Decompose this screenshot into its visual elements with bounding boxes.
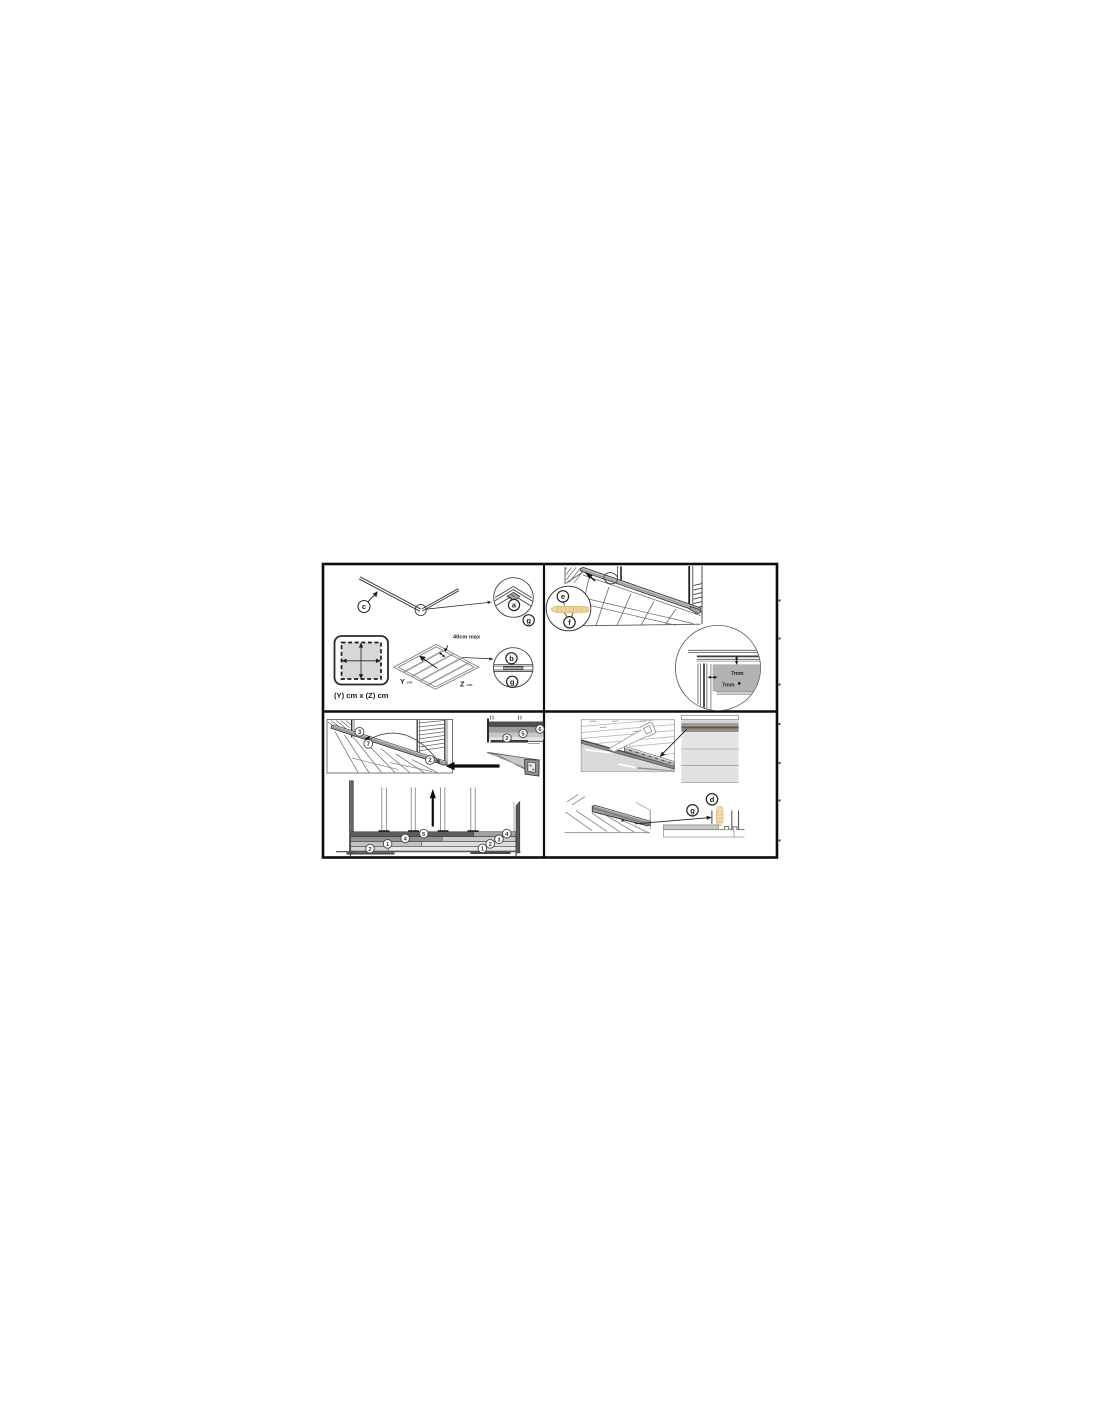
svg-text:7mm: 7mm: [731, 671, 744, 677]
svg-text:Y: Y: [400, 677, 405, 686]
svg-text:g: g: [690, 806, 695, 815]
svg-text:cm: cm: [467, 682, 473, 687]
svg-text:g: g: [526, 616, 531, 625]
svg-text:2: 2: [368, 847, 371, 853]
svg-text:2: 2: [505, 736, 508, 742]
svg-text:b: b: [509, 654, 514, 663]
svg-text:c: c: [362, 602, 366, 611]
svg-text:e: e: [561, 592, 565, 601]
svg-text:40cm max: 40cm max: [453, 635, 481, 641]
svg-text:g: g: [510, 678, 515, 687]
svg-text:cm: cm: [407, 680, 413, 685]
svg-text:d: d: [710, 795, 715, 804]
svg-text:2: 2: [489, 842, 492, 848]
svg-text:7mm: 7mm: [722, 682, 735, 688]
svg-text:Z: Z: [460, 680, 465, 689]
svg-text:(Y) cm x (Z) cm: (Y) cm x (Z) cm: [334, 691, 389, 700]
